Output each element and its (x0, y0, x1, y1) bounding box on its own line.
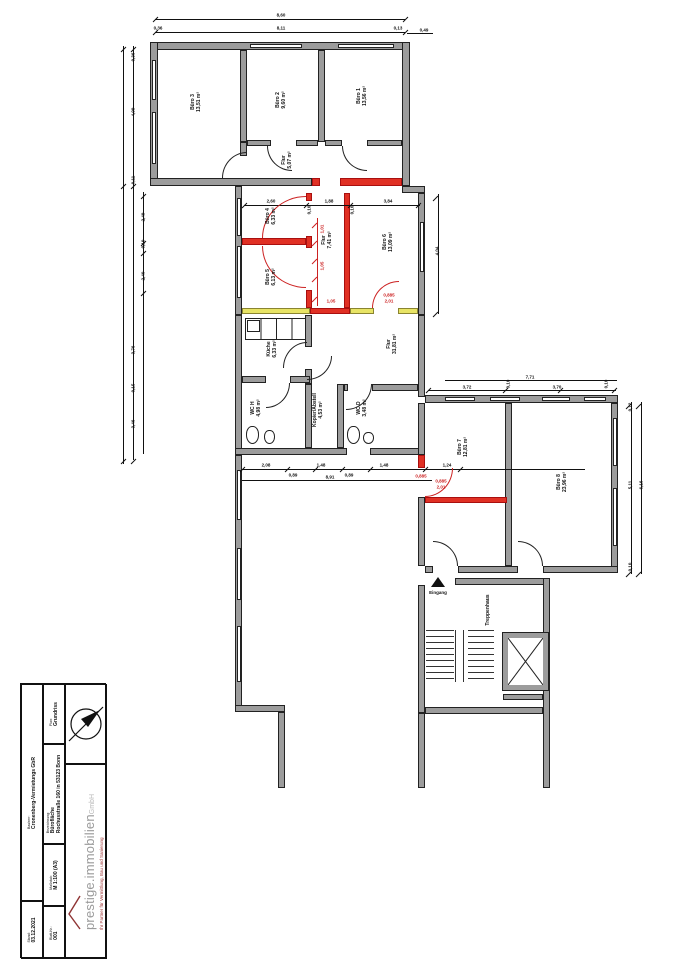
window (250, 44, 302, 48)
window (237, 548, 241, 600)
dimension-line (242, 469, 585, 470)
new-wall-segment (340, 178, 402, 186)
door-arc (266, 383, 290, 408)
logo-roof-icon (67, 870, 81, 930)
window (542, 397, 570, 401)
new-wall-segment (306, 290, 312, 308)
window (237, 626, 241, 682)
elevator-shaft (503, 633, 548, 690)
room-label-wc_d: WC D3,48 m² (356, 399, 368, 416)
window (490, 397, 520, 401)
dimension-text: 4,04 (435, 247, 440, 256)
window (420, 222, 424, 272)
wall-segment (455, 578, 545, 585)
dimension-text: 7,71 (526, 375, 535, 380)
dimension-line-red (317, 218, 318, 306)
field-plan: Plan: Grundriss (43, 684, 65, 744)
dimension-text: 5,11 (628, 481, 633, 490)
dimension-text: 0,15 (131, 384, 136, 393)
dimension-text: 1,48 (380, 463, 389, 468)
dimension-text: 3,84 (384, 199, 393, 204)
bezeichnung-line2: Rochusstraße 160 in 53123 Bonn (56, 755, 62, 833)
toilet-fixture (246, 426, 259, 444)
wall-segment (318, 50, 325, 142)
room-label-buero4: Büro 46,33 m² (265, 207, 277, 224)
dimension-line (244, 205, 420, 206)
stair-flight (426, 630, 454, 682)
wall-segment (305, 384, 312, 448)
new-wall-segment (312, 178, 320, 186)
title-block: Bauherr: Cronenberg-Vermietungs GbR Stan… (20, 683, 106, 958)
dimension-text: 3,72 (463, 385, 472, 390)
room-label-treppenhaus: Treppenhaus (485, 594, 491, 625)
compass-cell (65, 684, 107, 764)
toilet-fixture (347, 426, 360, 444)
plan-value: Grundriss (53, 702, 59, 726)
stand-value: 03.12.2021 (31, 917, 37, 942)
window (613, 418, 617, 466)
room-label-flur1: Flur5,07 m² (281, 151, 293, 168)
wall-segment (278, 712, 285, 788)
dimension-text: 2,40 (141, 272, 146, 281)
wall-segment (235, 448, 347, 455)
wall-segment (505, 403, 512, 566)
dimension-text: 0,36 (131, 53, 136, 62)
stair-flight (468, 630, 494, 682)
door-arc (307, 356, 332, 380)
dimension-text: 2,60 (267, 199, 276, 204)
room-label-buero3: Büro 313,51 m² (190, 92, 202, 112)
wall-segment (242, 376, 266, 383)
wall-segment (235, 705, 285, 712)
window (237, 198, 241, 236)
dimension-text: 1,88 (325, 199, 334, 204)
wall-segment (425, 566, 433, 573)
room-label-flur2: Flur7,41 m² (321, 231, 333, 248)
dimension-text: 0,89 (289, 473, 298, 478)
elevator-x-icon (508, 638, 543, 685)
dimension-line (155, 32, 405, 33)
door-arc (222, 152, 247, 178)
dimension-text: 1,24 (443, 463, 452, 468)
dimension-text: 1,05 (320, 262, 325, 271)
demolition-wall-segment (242, 308, 310, 314)
dimension-text: 2,01 (437, 485, 446, 490)
room-label-kueche: Küche6,33 m² (266, 340, 278, 357)
dimension-line (123, 46, 124, 464)
room-label-buero5: Büro 56,13 m² (265, 268, 277, 285)
dimension-text: 0,10 (141, 240, 146, 249)
dimension-tick (626, 572, 632, 578)
door-arc (342, 146, 367, 171)
dimension-text: 1,48 (317, 463, 326, 468)
window (338, 44, 394, 48)
logo-name: prestige.immobilienGmbH (81, 793, 98, 929)
dimension-text: 0,10 (604, 380, 609, 389)
logo-tagline: Ihr Partner für Vermittlung, Bau und San… (99, 793, 105, 929)
wall-segment (418, 497, 425, 566)
dimension-text: 0,885 (383, 293, 394, 298)
window (152, 60, 156, 100)
room-label-buero2: Büro 29,60 m² (275, 91, 287, 108)
dimension-text: 1,01 (320, 225, 325, 234)
new-wall-segment (306, 236, 312, 248)
dimension-text: 4,09 (131, 108, 136, 117)
field-bezeichnung: Bezeichnung: Bürofläche Rochusstraße 160… (43, 744, 65, 844)
dimension-text: 8,60 (277, 13, 286, 18)
door-arc (283, 342, 307, 368)
dimension-text: 8,91 (326, 475, 335, 480)
new-wall-segment (242, 238, 306, 245)
dimension-line (242, 480, 432, 481)
door-arc (518, 541, 543, 566)
sink-fixture (264, 430, 275, 444)
wall-segment (418, 713, 425, 788)
dimension-text: 2,01 (385, 299, 394, 304)
dimension-text: 3,46 (131, 420, 136, 429)
dimension-tick (433, 312, 439, 318)
dimension-text: 0,10 (506, 380, 511, 389)
wall-segment (418, 315, 425, 397)
room-label-buero1: Büro 113,56 m² (356, 86, 368, 106)
field-stand: Stand: 03.12.2021 (21, 901, 43, 959)
demolition-wall-segment (398, 308, 418, 314)
wall-segment (235, 315, 242, 455)
dimension-text: 0,89 (345, 473, 354, 478)
new-wall-segment (418, 455, 425, 468)
dimension-text: 2,49 (141, 213, 146, 222)
dimension-tick (131, 459, 137, 465)
wall-segment (372, 384, 418, 391)
dimension-line (445, 380, 617, 381)
window (613, 488, 617, 546)
dimension-text: 0,10 (307, 206, 312, 215)
entrance-arrow-icon (431, 577, 445, 587)
dimension-text: 0,10 (628, 563, 633, 572)
dimension-tick (403, 17, 409, 23)
dimension-text: 3,70 (553, 385, 562, 390)
window (237, 246, 241, 298)
wall-segment (425, 707, 543, 714)
dimension-text: 1,05 (327, 299, 336, 304)
room-label-flur3: Flur31,81 m² (386, 334, 398, 354)
stair-stringer (463, 630, 464, 682)
bauherr-value: Cronenberg-Vermietungs GbR (31, 757, 37, 829)
blatt-value: 001 (53, 926, 59, 940)
new-wall-segment (310, 308, 350, 314)
wall-segment (337, 384, 344, 448)
demolition-wall-segment (350, 308, 374, 314)
dimension-text: 8,11 (277, 26, 286, 31)
wall-segment (296, 140, 318, 146)
window (584, 397, 606, 401)
dimension-text: 0,11 (131, 176, 136, 185)
field-blatt: Blatt-Nr.: 001 (43, 906, 65, 959)
dimension-tick (612, 388, 618, 394)
dimension-text: 0,13 (394, 26, 403, 31)
window (445, 397, 475, 401)
logo-cell: prestige.immobilienGmbH Ihr Partner für … (65, 764, 107, 959)
entrance-label: Eingang (429, 590, 447, 595)
room-label-buero7: Büro 712,81 m² (457, 437, 469, 457)
floor-plan: Eingang Büro 313,51 m²Büro 29,60 m²Büro … (0, 0, 676, 800)
dimension-tick (636, 572, 642, 578)
wall-segment (150, 178, 312, 186)
wall-segment (402, 186, 425, 193)
dimension-text: 0,885 (435, 479, 446, 484)
room-label-kopier: Kopier/Abstell4,53 m² (312, 393, 324, 427)
new-wall-segment (425, 497, 507, 503)
room-label-buero6: Büro 613,09 m² (382, 232, 394, 252)
dimension-text: 0,49 (420, 28, 429, 33)
sink-fixture (363, 432, 374, 444)
wall-segment (543, 566, 618, 573)
wall-segment (503, 694, 543, 700)
wall-segment (240, 50, 247, 142)
field-massstab: Maßstab: M 1:100 (A3) (43, 844, 65, 906)
window (152, 112, 156, 164)
window (237, 470, 241, 520)
new-wall-segment (306, 193, 312, 201)
drawing-sheet: Eingang Büro 313,51 m²Büro 29,60 m²Büro … (0, 0, 676, 970)
stair-stringer (455, 630, 456, 682)
door-arc (433, 541, 458, 566)
massstab-value: M 1:100 (A3) (53, 860, 59, 889)
dimension-text: 0,885 (415, 474, 426, 479)
dimension-text: 3,76 (131, 346, 136, 355)
dimension-text: 0,12 (628, 403, 633, 412)
dimension-line (428, 390, 616, 391)
room-label-wc_h: WC H4,98 m² (250, 399, 262, 416)
room-label-buero8: Büro 823,96 m² (556, 472, 568, 492)
field-bauherr: Bauherr: Cronenberg-Vermietungs GbR (21, 684, 43, 901)
dimension-line (143, 192, 144, 454)
wall-segment (325, 140, 342, 146)
north-arrow-icon (64, 702, 108, 746)
dimension-text: 0,36 (154, 26, 163, 31)
wall-segment (402, 42, 410, 186)
wall-segment (370, 448, 425, 455)
dimension-text: 0,10 (350, 206, 355, 215)
dimension-text: 6,16 (639, 481, 644, 490)
wall-segment (418, 585, 425, 713)
wall-segment (458, 566, 518, 573)
dimension-text: 2,08 (262, 463, 271, 468)
dimension-line (407, 33, 433, 34)
kitchen-sink (247, 320, 260, 332)
dimension-line (155, 19, 405, 20)
wall-segment (367, 140, 402, 146)
wall-segment (418, 403, 425, 455)
